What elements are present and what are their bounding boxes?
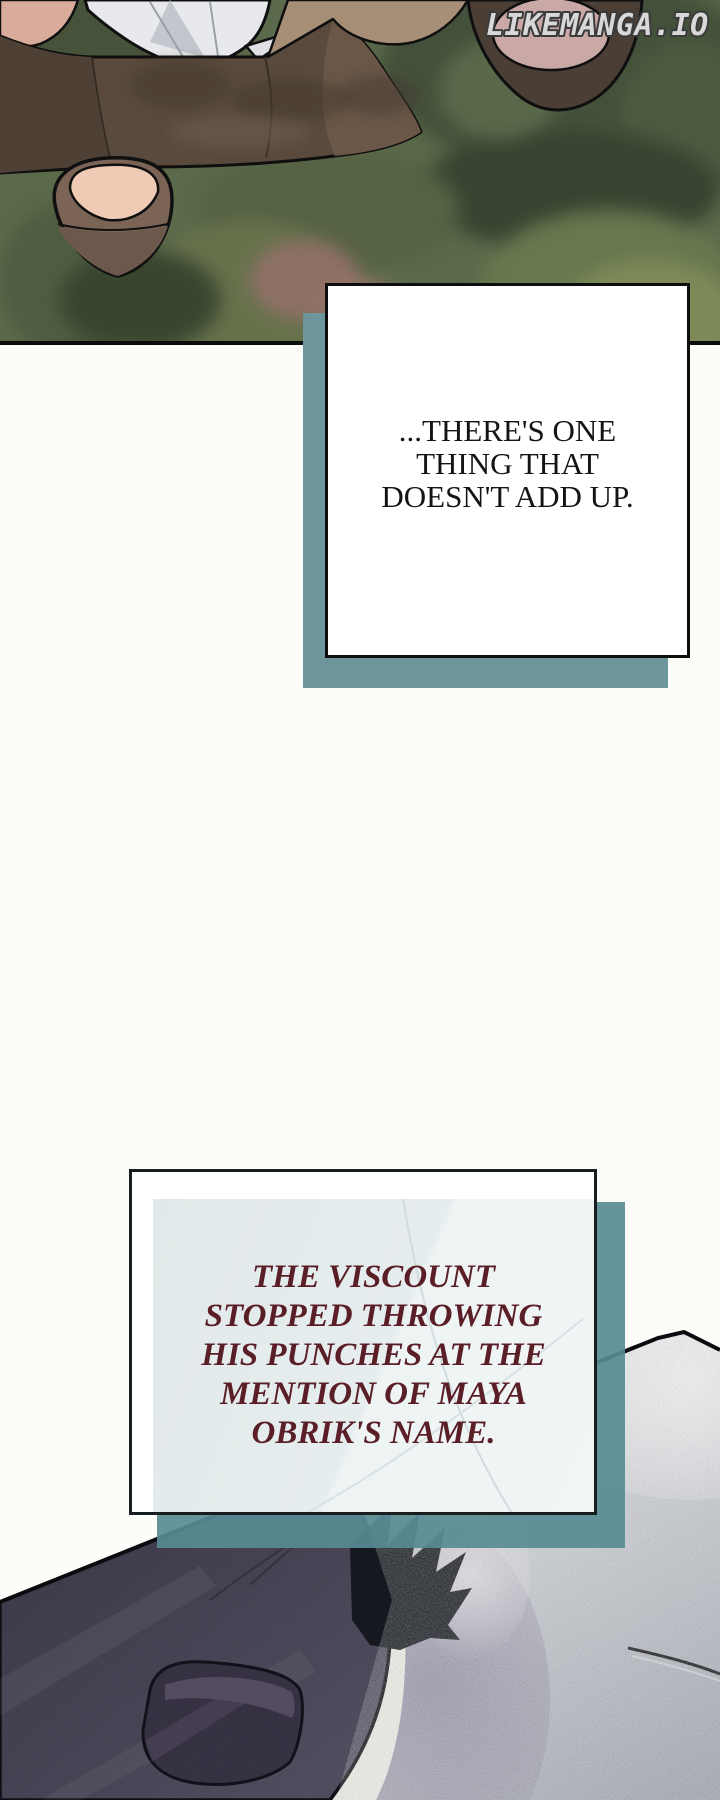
narration-line: HIS PUNCHES AT THE	[201, 1336, 545, 1375]
narration-box: THE VISCOUNT STOPPED THROWING HIS PUNCHE…	[129, 1169, 597, 1515]
site-watermark: LIKEMANGA.IO	[482, 5, 718, 47]
boot-shape	[54, 158, 172, 276]
speech-line: DOESN'T ADD UP.	[381, 480, 633, 513]
narration-box-panel: THE VISCOUNT STOPPED THROWING HIS PUNCHE…	[153, 1199, 594, 1512]
manga-page: LIKEMANGA.IO ...THERE'S ONE THING THAT D…	[0, 0, 720, 1800]
speech-text: ...THERE'S ONE THING THAT DOESN'T ADD UP…	[381, 414, 633, 513]
narration-line: THE VISCOUNT	[201, 1258, 545, 1297]
speech-line: ...THERE'S ONE	[381, 414, 633, 447]
watermark-text: LIKEMANGA.IO	[486, 8, 709, 43]
narration-line: OBRIK'S NAME.	[201, 1414, 545, 1453]
narration-text: THE VISCOUNT STOPPED THROWING HIS PUNCHE…	[201, 1258, 545, 1453]
narration-line: STOPPED THROWING	[201, 1297, 545, 1336]
speech-box: ...THERE'S ONE THING THAT DOESN'T ADD UP…	[325, 283, 690, 658]
speech-line: THING THAT	[381, 447, 633, 480]
narration-line: MENTION OF MAYA	[201, 1375, 545, 1414]
